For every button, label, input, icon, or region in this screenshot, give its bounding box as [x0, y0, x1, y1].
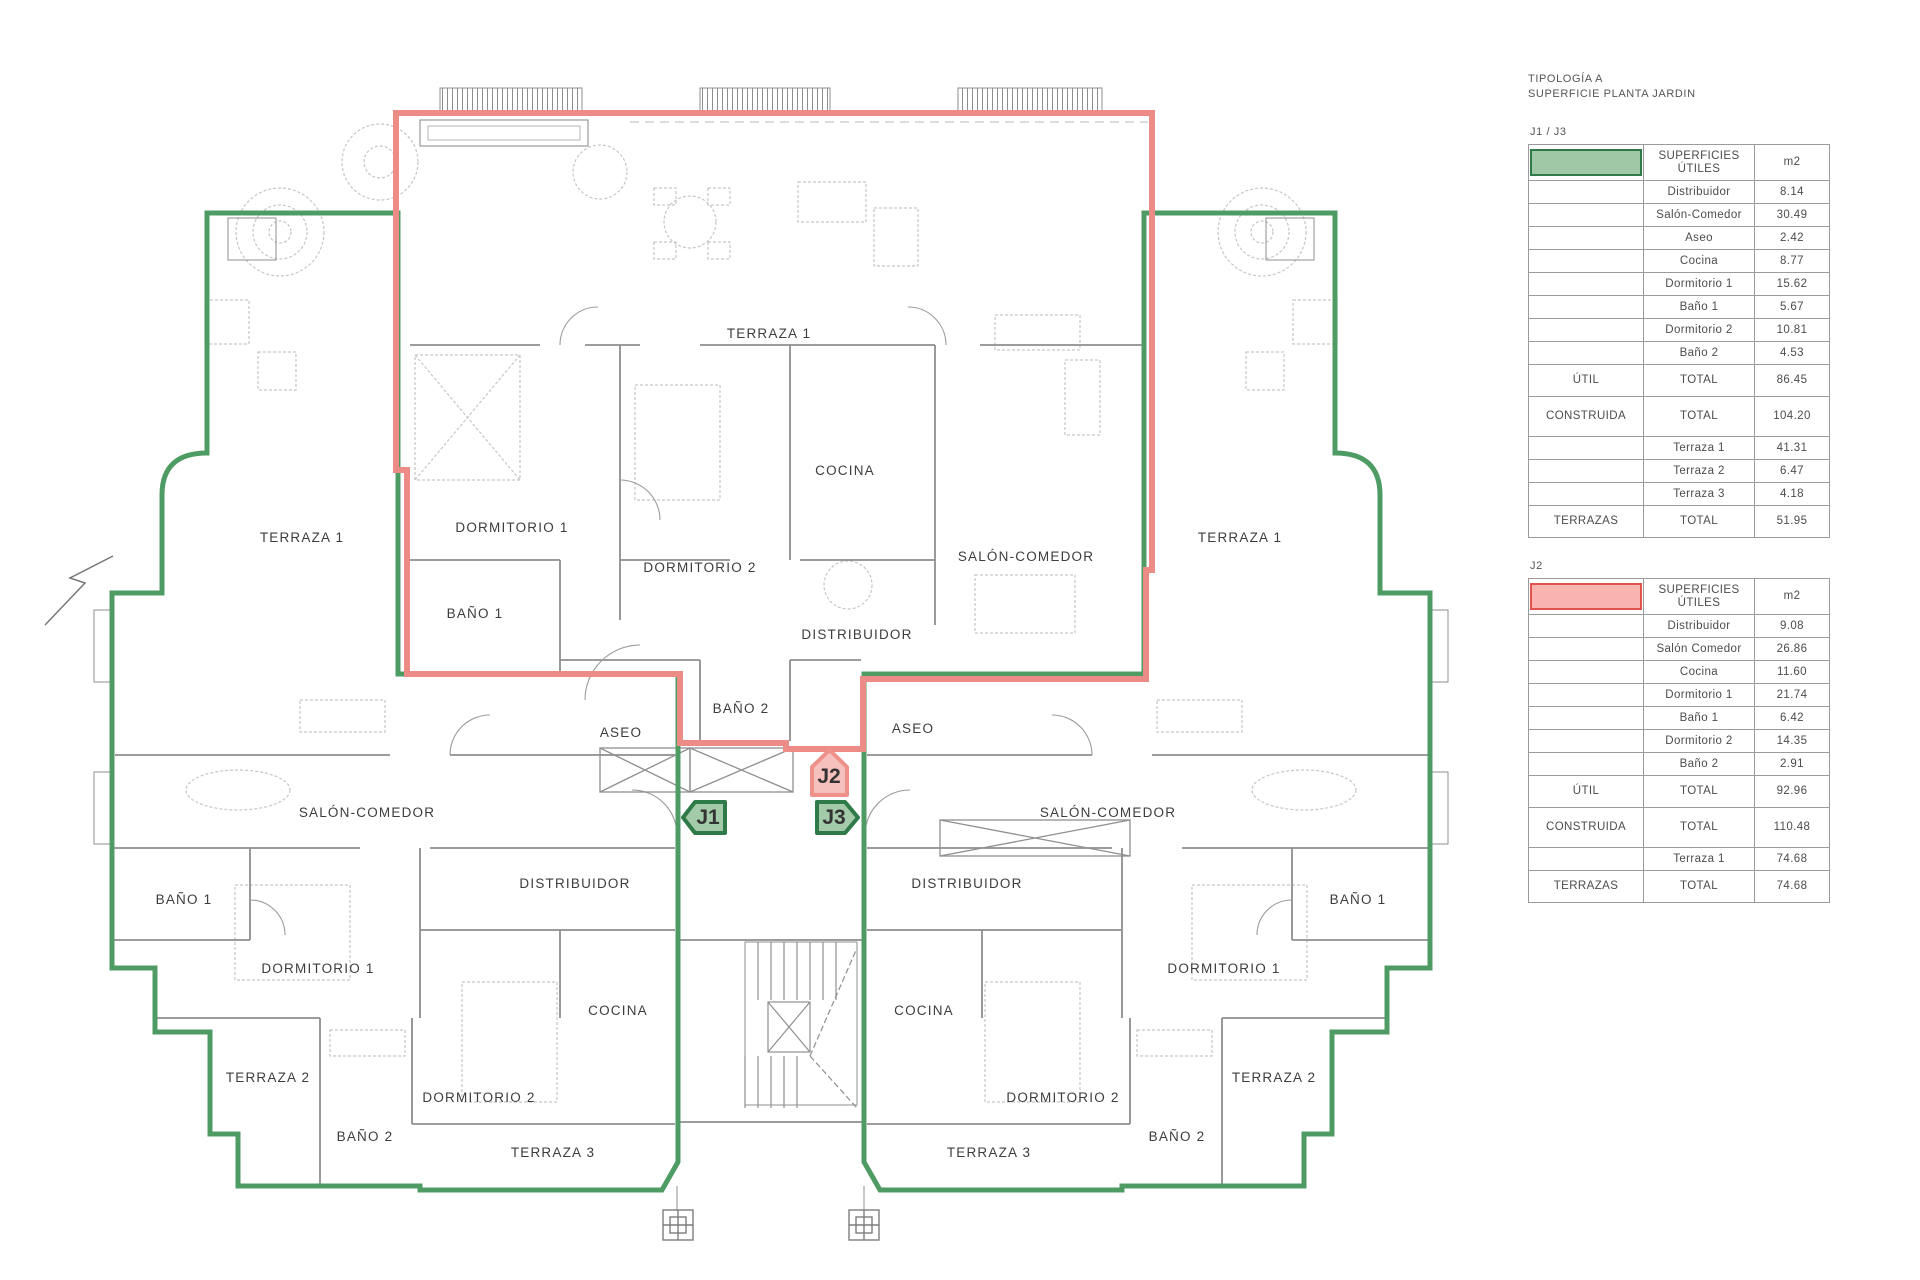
room-label: DORMITORIO 1 [1167, 961, 1280, 976]
total-label: TOTAL [1644, 397, 1755, 437]
row-label: Terraza 1 [1644, 848, 1755, 871]
row-value: 74.68 [1755, 848, 1830, 871]
total-label: TOTAL [1644, 776, 1755, 808]
total-group-label: ÚTIL [1529, 776, 1644, 808]
row-value: 15.62 [1755, 273, 1830, 296]
total-group-label: CONSTRUIDA [1529, 808, 1644, 848]
row-value: 14.35 [1755, 730, 1830, 753]
room-label: DORMITORIO 2 [1006, 1090, 1119, 1105]
total-label: TOTAL [1644, 808, 1755, 848]
room-label: BAÑO 2 [337, 1129, 394, 1144]
typology-title-line1: TIPOLOGÍA A [1528, 72, 1820, 87]
area-table-j1j3: SUPERFICIES ÚTILES m2 Distribuidor8.14 S… [1528, 144, 1830, 538]
row-label: Distribuidor [1644, 181, 1755, 204]
total-value: 110.48 [1755, 808, 1830, 848]
room-label: SALÓN-COMEDOR [958, 549, 1094, 564]
row-value: 41.31 [1755, 437, 1830, 460]
row-label: Cocina [1644, 661, 1755, 684]
room-label: ASEO [892, 721, 934, 736]
table-header-superficies: SUPERFICIES ÚTILES [1644, 579, 1755, 615]
room-label: DORMITORIO 1 [455, 520, 568, 535]
total-value: 86.45 [1755, 365, 1830, 397]
row-label: Salón Comedor [1644, 638, 1755, 661]
room-label: COCINA [894, 1003, 954, 1018]
row-value: 8.77 [1755, 250, 1830, 273]
badge-j3-label: J3 [822, 806, 845, 829]
row-value: 6.42 [1755, 707, 1830, 730]
total-group-label: CONSTRUIDA [1529, 397, 1644, 437]
room-label: COCINA [588, 1003, 648, 1018]
total-group-label: TERRAZAS [1529, 506, 1644, 538]
row-value: 4.18 [1755, 483, 1830, 506]
footing-squares [663, 1210, 879, 1240]
row-value: 6.47 [1755, 460, 1830, 483]
floor-plan-drawing: J1 J2 J3 TERRAZA 1 TERRAZA 1 TERRAZA 1 D… [0, 0, 1490, 1280]
typology-title-line2: SUPERFICIE PLANTA JARDIN [1528, 87, 1820, 102]
total-value: 104.20 [1755, 397, 1830, 437]
room-label: DORMITORIO 2 [643, 560, 756, 575]
room-label: DORMITORIO 2 [422, 1090, 535, 1105]
row-value: 10.81 [1755, 319, 1830, 342]
room-label: DORMITORIO 1 [261, 961, 374, 976]
row-value: 26.86 [1755, 638, 1830, 661]
row-label: Salón-Comedor [1644, 204, 1755, 227]
total-label: TOTAL [1644, 871, 1755, 903]
room-label: TERRAZA 1 [1198, 530, 1282, 545]
wardrobes [412, 748, 1130, 856]
row-label: Dormitorio 1 [1644, 684, 1755, 707]
room-label: BAÑO 1 [1330, 892, 1387, 907]
badge-j2-label: J2 [817, 765, 840, 788]
row-value: 9.08 [1755, 615, 1830, 638]
room-label: COCINA [815, 463, 875, 478]
room-label: TERRAZA 1 [260, 530, 344, 545]
floor-plan-page: J1 J2 J3 TERRAZA 1 TERRAZA 1 TERRAZA 1 D… [0, 0, 1920, 1280]
room-label: TERRAZA 2 [226, 1070, 310, 1085]
row-value: 4.53 [1755, 342, 1830, 365]
room-label: SALÓN-COMEDOR [299, 805, 435, 820]
room-label: DISTRIBUIDOR [519, 876, 630, 891]
row-value: 8.14 [1755, 181, 1830, 204]
room-label: TERRAZA 2 [1232, 1070, 1316, 1085]
room-label: TERRAZA 1 [727, 326, 811, 341]
area-table-j2: SUPERFICIES ÚTILES m2 Distribuidor9.08 S… [1528, 578, 1830, 903]
total-group-label: TERRAZAS [1529, 871, 1644, 903]
total-value: 51.95 [1755, 506, 1830, 538]
table-header-unit: m2 [1755, 579, 1830, 615]
row-label: Baño 2 [1644, 342, 1755, 365]
typology-title: TIPOLOGÍA A SUPERFICIE PLANTA JARDIN [1528, 72, 1820, 102]
row-label: Dormitorio 2 [1644, 730, 1755, 753]
row-label: Aseo [1644, 227, 1755, 250]
row-value: 30.49 [1755, 204, 1830, 227]
row-label: Distribuidor [1644, 615, 1755, 638]
total-group-label: ÚTIL [1529, 365, 1644, 397]
row-value: 2.91 [1755, 753, 1830, 776]
unit-outline-j2 [396, 113, 1152, 749]
section-label-j2: J2 [1530, 560, 1820, 572]
row-label: Terraza 3 [1644, 483, 1755, 506]
total-value: 92.96 [1755, 776, 1830, 808]
room-label: BAÑO 2 [713, 701, 770, 716]
green-swatch [1530, 149, 1642, 176]
break-line-symbol [45, 556, 113, 625]
total-label: TOTAL [1644, 506, 1755, 538]
unit-outline-j3 [864, 213, 1430, 1190]
row-value: 11.60 [1755, 661, 1830, 684]
staircase [745, 942, 857, 1108]
row-label: Dormitorio 1 [1644, 273, 1755, 296]
table-header-unit: m2 [1755, 145, 1830, 181]
row-label: Baño 2 [1644, 753, 1755, 776]
row-label: Baño 1 [1644, 707, 1755, 730]
row-label: Terraza 2 [1644, 460, 1755, 483]
total-label: TOTAL [1644, 365, 1755, 397]
total-value: 74.68 [1755, 871, 1830, 903]
row-value: 5.67 [1755, 296, 1830, 319]
room-label: TERRAZA 3 [511, 1145, 595, 1160]
room-label: SALÓN-COMEDOR [1040, 805, 1176, 820]
room-label: BAÑO 1 [156, 892, 213, 907]
row-value: 2.42 [1755, 227, 1830, 250]
room-label: BAÑO 1 [447, 606, 504, 621]
room-label: ASEO [600, 725, 642, 740]
room-label: DISTRIBUIDOR [911, 876, 1022, 891]
row-value: 21.74 [1755, 684, 1830, 707]
table-header-superficies: SUPERFICIES ÚTILES [1644, 145, 1755, 181]
row-label: Baño 1 [1644, 296, 1755, 319]
red-swatch [1530, 583, 1642, 610]
row-label: Terraza 1 [1644, 437, 1755, 460]
room-label: TERRAZA 3 [947, 1145, 1031, 1160]
row-label: Dormitorio 2 [1644, 319, 1755, 342]
area-tables-panel: TIPOLOGÍA A SUPERFICIE PLANTA JARDIN J1 … [1528, 72, 1820, 903]
row-label: Cocina [1644, 250, 1755, 273]
section-label-j1j3: J1 / J3 [1530, 126, 1820, 138]
interior-walls [94, 120, 1448, 1210]
badge-j1-label: J1 [696, 806, 720, 829]
room-label: DISTRIBUIDOR [801, 627, 912, 642]
room-label: BAÑO 2 [1149, 1129, 1206, 1144]
